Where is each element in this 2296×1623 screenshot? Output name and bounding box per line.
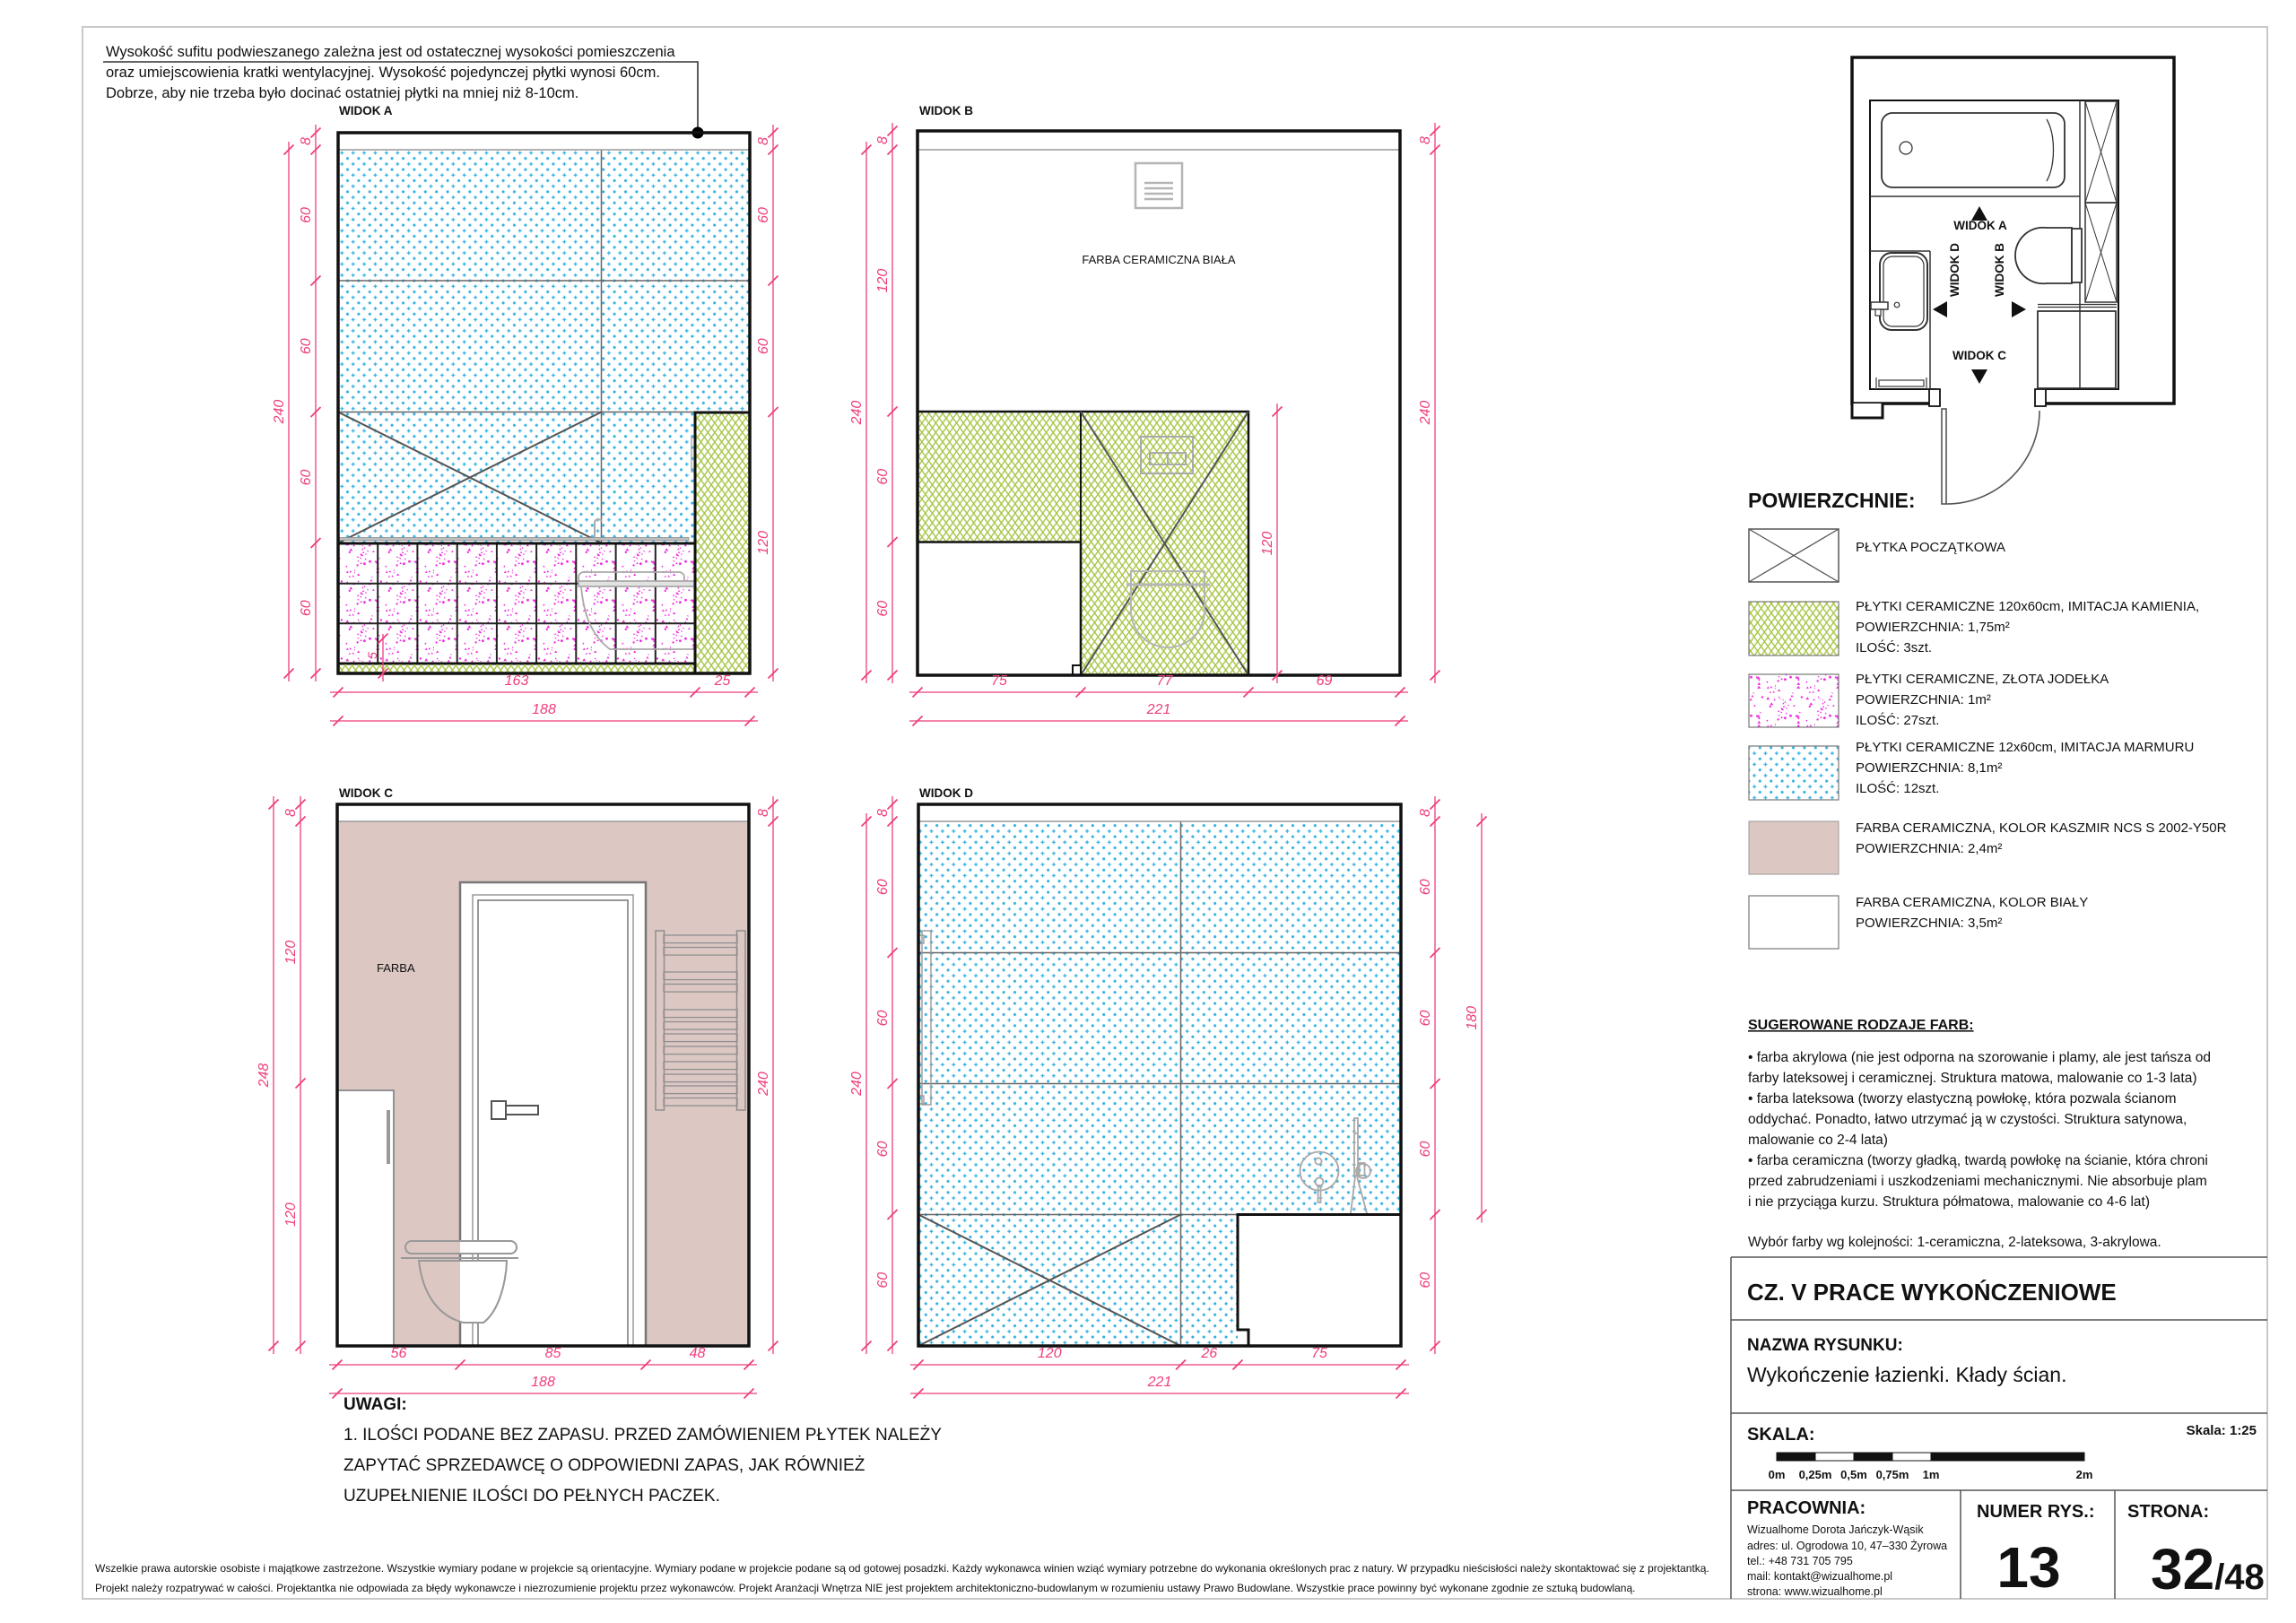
- svg-text:60: 60: [299, 207, 314, 223]
- svg-text:120: 120: [1038, 1346, 1062, 1361]
- svg-text:60: 60: [875, 1141, 891, 1158]
- svg-text:• farba lateksowa (tworzy elas: • farba lateksowa (tworzy elastyczną pow…: [1748, 1091, 2177, 1107]
- svg-text:tel.: +48 731 705 795: tel.: +48 731 705 795: [1747, 1555, 1853, 1567]
- svg-text:przed zabrudzeniami i uszkodze: przed zabrudzeniami i uszkodzeniami mech…: [1748, 1174, 2207, 1189]
- svg-text:POWIERZCHNIA: 1,75m²: POWIERZCHNIA: 1,75m²: [1856, 620, 2010, 635]
- svg-text:8: 8: [283, 809, 299, 817]
- svg-text:69: 69: [1317, 673, 1333, 689]
- svg-text:48: 48: [690, 1346, 706, 1361]
- svg-text:8: 8: [756, 137, 771, 145]
- svg-text:WIDOK A: WIDOK A: [339, 104, 393, 117]
- svg-text:WIDOK D: WIDOK D: [919, 786, 973, 800]
- svg-text:188: 188: [532, 702, 556, 717]
- svg-text:8: 8: [1418, 809, 1433, 817]
- svg-text:1m: 1m: [1923, 1468, 1940, 1481]
- svg-text:60: 60: [299, 600, 314, 616]
- svg-text:FARBA: FARBA: [377, 961, 415, 975]
- svg-text:75: 75: [1311, 1346, 1327, 1361]
- svg-text:mail: kontakt@wizualhome.pl: mail: kontakt@wizualhome.pl: [1747, 1570, 1892, 1583]
- svg-text:POWIERZCHNIE:: POWIERZCHNIE:: [1748, 489, 1916, 512]
- svg-text:WIDOK D: WIDOK D: [1948, 243, 1961, 297]
- svg-text:0,25m: 0,25m: [1799, 1468, 1832, 1481]
- svg-text:SUGEROWANE RODZAJE FARB:: SUGEROWANE RODZAJE FARB:: [1748, 1018, 1974, 1033]
- svg-text:240: 240: [1418, 401, 1433, 426]
- svg-text:oddychać. Ponadto, łatwo utrzy: oddychać. Ponadto, łatwo utrzymać ją w c…: [1748, 1112, 2187, 1127]
- svg-text:PRACOWNIA:: PRACOWNIA:: [1747, 1498, 1865, 1518]
- svg-text:FARBA CERAMICZNA BIAŁA: FARBA CERAMICZNA BIAŁA: [1082, 253, 1236, 266]
- svg-text:60: 60: [1418, 1011, 1433, 1027]
- svg-text:ILOŚĆ: 3szt.: ILOŚĆ: 3szt.: [1856, 639, 1932, 655]
- svg-text:26: 26: [1200, 1346, 1217, 1361]
- svg-text:60: 60: [299, 470, 314, 486]
- svg-text:0,75m: 0,75m: [1876, 1468, 1909, 1481]
- svg-text:8: 8: [756, 809, 771, 817]
- svg-text:60: 60: [1418, 1141, 1433, 1158]
- svg-text:STRONA:: STRONA:: [2127, 1502, 2209, 1522]
- svg-text:180: 180: [1465, 1006, 1480, 1030]
- svg-text:188: 188: [531, 1375, 555, 1390]
- svg-text:PŁYTKI CERAMICZNE 12x60cm, IMI: PŁYTKI CERAMICZNE 12x60cm, IMITACJA MARM…: [1856, 740, 2194, 755]
- svg-text:240: 240: [849, 1072, 865, 1097]
- svg-text:240: 240: [849, 401, 865, 426]
- svg-text:CZ. V PRACE WYKOŃCZENIOWE: CZ. V PRACE WYKOŃCZENIOWE: [1747, 1279, 2117, 1306]
- svg-text:i nie przyciąga kurzu. Struktu: i nie przyciąga kurzu. Struktura półmato…: [1748, 1194, 2150, 1210]
- svg-text:POWIERZCHNIA: 1m²: POWIERZCHNIA: 1m²: [1856, 692, 1991, 707]
- svg-text:8: 8: [875, 809, 891, 817]
- svg-text:60: 60: [756, 338, 771, 354]
- svg-text:UZUPEŁNIENIE ILOŚCI DO PEŁNYCH: UZUPEŁNIENIE ILOŚCI DO PEŁNYCH PACZEK.: [344, 1486, 720, 1506]
- svg-text:ZAPYTAĆ SPRZEDAWCĘ O ODPOWIEDN: ZAPYTAĆ SPRZEDAWCĘ O ODPOWIEDNI ZAPAS, J…: [344, 1455, 865, 1475]
- svg-text:UWAGI:: UWAGI:: [344, 1395, 407, 1414]
- svg-text:60: 60: [875, 879, 891, 895]
- svg-text:adres: ul. Ogrodowa 10, 47–330: adres: ul. Ogrodowa 10, 47–330 Żyrowa: [1747, 1540, 1947, 1552]
- svg-text:Wszelkie prawa autorskie osobi: Wszelkie prawa autorskie osobiste i mają…: [95, 1562, 1709, 1575]
- svg-text:ILOŚĆ: 27szt.: ILOŚĆ: 27szt.: [1856, 712, 1939, 728]
- svg-text:NUMER RYS.:: NUMER RYS.:: [1977, 1502, 2094, 1522]
- svg-text:248: 248: [257, 1063, 272, 1089]
- svg-text:60: 60: [875, 1011, 891, 1027]
- svg-text:SKALA:: SKALA:: [1747, 1425, 1815, 1445]
- svg-text:WIDOK B: WIDOK B: [919, 104, 973, 117]
- svg-text:221: 221: [1147, 1375, 1172, 1390]
- svg-text:75: 75: [991, 673, 1007, 689]
- svg-text:NAZWA RYSUNKU:: NAZWA RYSUNKU:: [1747, 1336, 1903, 1355]
- svg-text:60: 60: [875, 469, 891, 485]
- svg-text:60: 60: [875, 601, 891, 617]
- svg-text:FARBA CERAMICZNA, KOLOR KASZMI: FARBA CERAMICZNA, KOLOR KASZMIR NCS S 20…: [1856, 820, 2227, 836]
- svg-text:120: 120: [756, 531, 771, 555]
- svg-text:• farba akrylowa (nie jest odp: • farba akrylowa (nie jest odporna na sz…: [1748, 1050, 2211, 1065]
- svg-text:Dobrze, aby nie trzeba było do: Dobrze, aby nie trzeba było docinać osta…: [106, 85, 578, 101]
- svg-text:60: 60: [875, 1272, 891, 1289]
- svg-text:56: 56: [391, 1346, 407, 1361]
- svg-text:Wybór farby wg kolejności: 1-c: Wybór farby wg kolejności: 1-ceramiczna,…: [1748, 1235, 2161, 1250]
- svg-text:0m: 0m: [1769, 1468, 1786, 1481]
- svg-text:ILOŚĆ: 12szt.: ILOŚĆ: 12szt.: [1856, 780, 1939, 796]
- svg-text:POWIERZCHNIA: 8,1m²: POWIERZCHNIA: 8,1m²: [1856, 760, 2002, 776]
- svg-text:PŁYTKI CERAMICZNE 120x60cm, IM: PŁYTKI CERAMICZNE 120x60cm, IMITACJA KAM…: [1856, 599, 2199, 614]
- svg-text:60: 60: [1418, 879, 1433, 895]
- svg-text:240: 240: [756, 1072, 771, 1097]
- svg-text:13: 13: [1996, 1535, 2060, 1600]
- svg-text:WIDOK C: WIDOK C: [339, 786, 393, 800]
- svg-text:1. ILOŚCI PODANE BEZ ZAPASU. P: 1. ILOŚCI PODANE BEZ ZAPASU. PRZED ZAMÓW…: [344, 1425, 942, 1445]
- svg-text:85: 85: [545, 1346, 561, 1361]
- svg-text:FARBA CERAMICZNA, KOLOR BIAŁY: FARBA CERAMICZNA, KOLOR BIAŁY: [1856, 895, 2088, 910]
- svg-text:strona: www.wizualhome.pl: strona: www.wizualhome.pl: [1747, 1585, 1883, 1598]
- svg-text:60: 60: [299, 338, 314, 354]
- svg-text:120: 120: [283, 1202, 299, 1227]
- svg-text:• farba ceramiczna (tworzy gła: • farba ceramiczna (tworzy gładką, tward…: [1748, 1153, 2208, 1168]
- svg-text:221: 221: [1146, 702, 1171, 717]
- svg-text:WIDOK A: WIDOK A: [1953, 219, 2007, 232]
- svg-text:oraz umiejscowienia kratki wen: oraz umiejscowienia kratki wentylacyjnej…: [106, 65, 660, 81]
- svg-text:Projekt należy rozpatrywać w c: Projekt należy rozpatrywać w całości. Pr…: [95, 1582, 1635, 1594]
- svg-text:Wizualhome Dorota Jańczyk-Wąsi: Wizualhome Dorota Jańczyk-Wąsik: [1747, 1523, 1924, 1536]
- svg-text:240: 240: [272, 400, 287, 425]
- svg-text:farby lateksowej i ceramicznej: farby lateksowej i ceramicznej. Struktur…: [1748, 1071, 2197, 1086]
- svg-text:POWIERZCHNIA: 3,5m²: POWIERZCHNIA: 3,5m²: [1856, 916, 2002, 931]
- svg-text:77: 77: [1157, 673, 1174, 689]
- svg-text:Skala: 1:25: Skala: 1:25: [2187, 1423, 2257, 1438]
- svg-text:POWIERZCHNIA: 2,4m²: POWIERZCHNIA: 2,4m²: [1856, 841, 2002, 856]
- svg-text:8: 8: [875, 136, 891, 144]
- svg-text:8: 8: [299, 137, 314, 145]
- svg-text:5: 5: [365, 652, 379, 659]
- svg-text:WIDOK C: WIDOK C: [1952, 349, 2006, 362]
- svg-text:malowanie co 2-4 lata): malowanie co 2-4 lata): [1748, 1133, 1888, 1148]
- svg-text:120: 120: [283, 941, 299, 965]
- svg-text:8: 8: [1418, 136, 1433, 144]
- svg-text:WIDOK B: WIDOK B: [1993, 243, 2006, 297]
- svg-text:120: 120: [1260, 532, 1275, 556]
- svg-text:Wykończenie łazienki. Kłady śc: Wykończenie łazienki. Kłady ścian.: [1747, 1363, 2066, 1386]
- svg-text:2m: 2m: [2076, 1468, 2093, 1481]
- svg-text:163: 163: [505, 673, 529, 689]
- svg-text:120: 120: [875, 269, 891, 293]
- svg-text:0,5m: 0,5m: [1840, 1468, 1867, 1481]
- svg-text:25: 25: [714, 673, 731, 689]
- svg-text:Wysokość sufitu podwieszanego: Wysokość sufitu podwieszanego zależna je…: [106, 44, 675, 60]
- svg-text:60: 60: [1418, 1272, 1433, 1289]
- svg-text:PŁYTKI CERAMICZNE, ZŁOTA JODEŁ: PŁYTKI CERAMICZNE, ZŁOTA JODEŁKA: [1856, 672, 2109, 687]
- svg-text:60: 60: [756, 207, 771, 223]
- svg-text:PŁYTKA POCZĄTKOWA: PŁYTKA POCZĄTKOWA: [1856, 540, 2005, 555]
